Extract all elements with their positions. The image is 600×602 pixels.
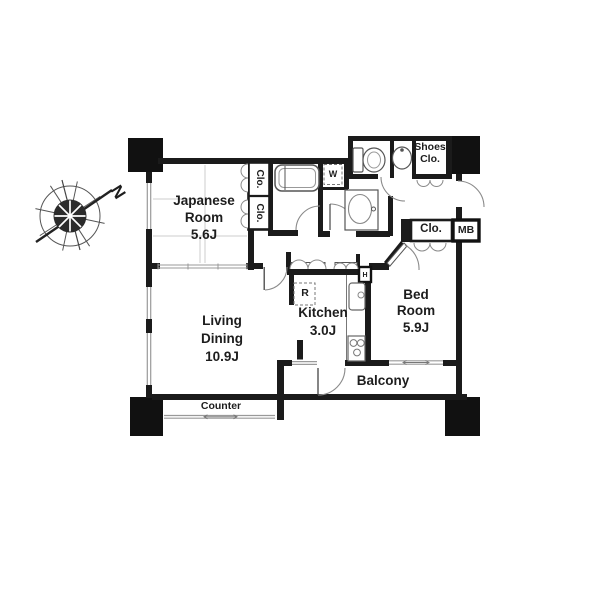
bathtub-icon	[275, 165, 319, 191]
column-bottom-right	[445, 397, 480, 436]
japanese-closet-doors	[241, 164, 248, 228]
shoes-closet-label-line2: Clo.	[420, 154, 440, 165]
window-left-living-1	[145, 287, 153, 319]
counter-label: Counter	[201, 401, 241, 412]
counter-rail	[164, 415, 275, 419]
stove-icon	[348, 336, 365, 361]
washer-space-label: W	[329, 170, 338, 179]
corridor-living-door	[264, 267, 287, 290]
living-dining-size: 10.9J	[205, 350, 239, 364]
toilet-door	[381, 177, 405, 201]
toilet-icon	[353, 148, 385, 172]
window-left-living-2	[145, 333, 153, 385]
wash-basin-icon	[345, 190, 378, 230]
window-kitchen-balcony	[292, 360, 317, 367]
living-dining-label-line1: Living	[202, 314, 242, 328]
window-left-japanese	[145, 183, 153, 229]
compass-north-icon	[35, 180, 112, 251]
bathroom-door	[296, 206, 320, 230]
japanese-room-label-line2: Room	[185, 211, 223, 225]
kitchen-label: Kitchen	[298, 306, 348, 320]
hand-basin-icon	[393, 147, 412, 169]
kitchen-size: 3.0J	[310, 324, 336, 338]
bedroom-closet-label: Clo.	[420, 224, 442, 236]
hatch-label: H	[362, 272, 367, 279]
column-top-left	[128, 138, 163, 172]
shoes-closet-label-line1: Shoes	[414, 142, 446, 153]
floorplan-canvas: N Japanese Room 5.6J Living Dining 10.9J…	[0, 0, 600, 602]
japanese-closet-upper-label: Clo.	[254, 170, 264, 189]
balcony-label: Balcony	[357, 374, 410, 388]
meter-box-label: MB	[458, 225, 474, 236]
living-dining-label-line2: Dining	[201, 332, 243, 346]
column-bottom-left	[130, 397, 163, 436]
sliding-door	[158, 264, 247, 270]
kitchen-sink-icon	[349, 283, 365, 310]
japanese-closet-lower-label: Clo.	[254, 204, 264, 223]
balcony-door	[318, 368, 345, 395]
window-bedroom-balcony	[389, 359, 443, 367]
japanese-room-size: 5.6J	[191, 228, 217, 242]
floorplan-drawing	[0, 0, 600, 602]
entry-door	[458, 181, 484, 207]
corridor-cabinet-doors	[290, 260, 358, 269]
bed-room-size: 5.9J	[403, 321, 429, 335]
bedroom-closet-doors	[414, 243, 446, 251]
shoes-closet-doors	[417, 180, 443, 187]
refrigerator-space-label: R	[301, 288, 309, 299]
bed-room-label-line2: Room	[397, 304, 435, 318]
column-top-right	[450, 136, 480, 174]
bed-room-label-line1: Bed	[403, 288, 429, 302]
japanese-room-label-line1: Japanese	[173, 194, 235, 208]
